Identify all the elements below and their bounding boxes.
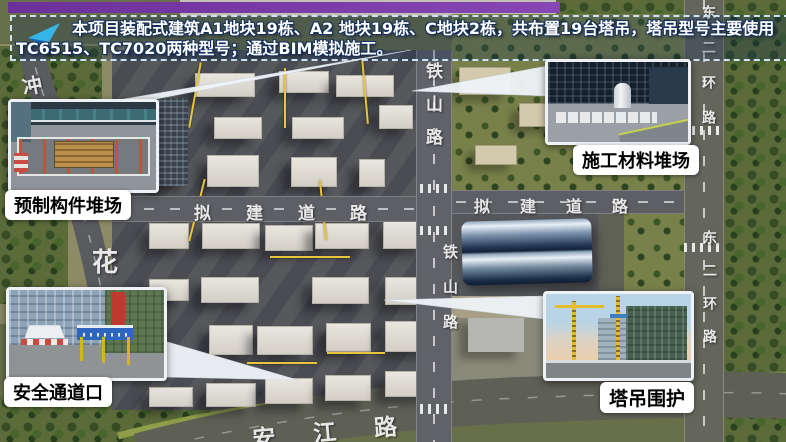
callout-label-safety-passage-entrance: 安全通道口 — [4, 377, 112, 407]
red-white-barrier — [14, 153, 29, 172]
component-stacks — [55, 142, 113, 167]
callout-label-construction-material-yard: 施工材料堆场 — [573, 145, 699, 175]
thumbnail-prefab-component-yard — [8, 99, 159, 193]
tower-crane-mast — [616, 296, 620, 360]
white-fence-row — [556, 112, 657, 123]
green-glass-tower — [626, 306, 687, 360]
tower-crane-jib — [555, 305, 604, 308]
pointer-material-yard — [412, 66, 547, 96]
canopy-post — [80, 337, 83, 362]
red-hoist — [111, 292, 125, 327]
canopy-post — [127, 337, 130, 365]
pointer-crane-enclosure — [384, 296, 544, 319]
striped-barrier — [21, 339, 68, 344]
teal-building-strip — [11, 109, 156, 122]
white-tent — [25, 325, 65, 338]
canopy-roof — [77, 325, 133, 339]
thumbnail-safety-passage-entrance — [6, 287, 167, 381]
thumbnail-tower-crane-enclosure — [543, 291, 694, 381]
tower-crane-mast — [572, 301, 576, 360]
thumbnail-construction-material-yard — [545, 59, 691, 145]
ground — [546, 360, 691, 381]
side-building — [649, 67, 688, 104]
callout-label-prefab-component-yard: 预制构件堆场 — [5, 190, 131, 220]
slide-canvas: 铁山路 铁山路 拟建道路 拟建道路 东二环路 东二环路 安江路 花 冲 本项目装… — [0, 0, 786, 442]
cement-silo — [614, 83, 631, 109]
background-building — [598, 318, 627, 360]
pointer-safety-entrance — [161, 340, 298, 380]
tower-crane-cab — [610, 314, 627, 318]
canopy-post — [102, 337, 105, 363]
pointer-prefab-yard — [112, 50, 411, 101]
callout-label-tower-crane-enclosure: 塔吊围护 — [600, 382, 694, 413]
